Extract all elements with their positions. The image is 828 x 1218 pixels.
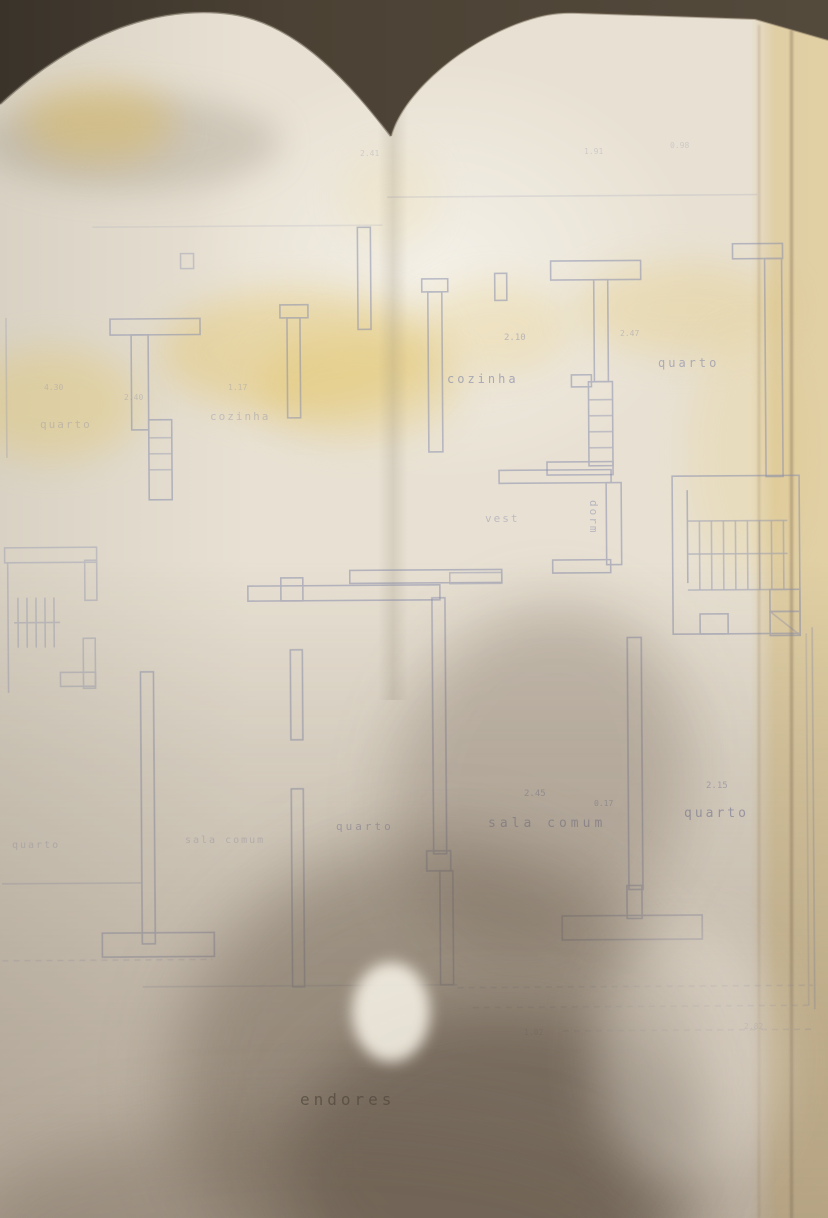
stairwell-left [5,547,98,693]
handwritten-caption: endores [300,1090,395,1109]
room-label-quarto-middle: quarto [336,820,394,833]
walls-upper [5,194,784,500]
table-surface-background [0,0,828,200]
photographed-floor-plan: cozinha quarto quarto cozinha vest dorm … [0,0,828,1218]
room-label-vest: vest [485,512,520,525]
dimension-text: 2.10 [504,333,526,343]
dimension-text: 2.45 [524,789,546,799]
room-label-quarto-faint: quarto [12,840,60,851]
room-label-quarto-upper-right: quarto [658,356,719,370]
dimension-text: 2.47 [620,329,639,338]
dimension-text: 2.82 [744,1022,763,1031]
dimension-text: 1.17 [228,383,247,392]
dimension-text: 2.40 [124,393,143,402]
room-label-sala-comum: sala comum [488,816,606,831]
dimension-text: 4.30 [44,383,63,392]
room-label-quarto-lower-right: quarto [684,806,749,821]
room-label-sala-comum-faint: sala comum [185,835,265,846]
dimension-text: 2.15 [706,781,728,791]
room-label-dorm: dorm [587,500,600,535]
room-label-quarto-upper-left: quarto [40,418,92,431]
surface-shape [0,0,828,136]
room-label-cozinha: cozinha [447,372,519,386]
walls-middle [247,470,622,602]
dimension-text: 1.02 [524,1028,543,1037]
stairwell-right [672,475,800,636]
dimension-text: 0.17 [594,799,613,808]
room-label-cozinha-upper-left: cozinha [210,410,270,423]
